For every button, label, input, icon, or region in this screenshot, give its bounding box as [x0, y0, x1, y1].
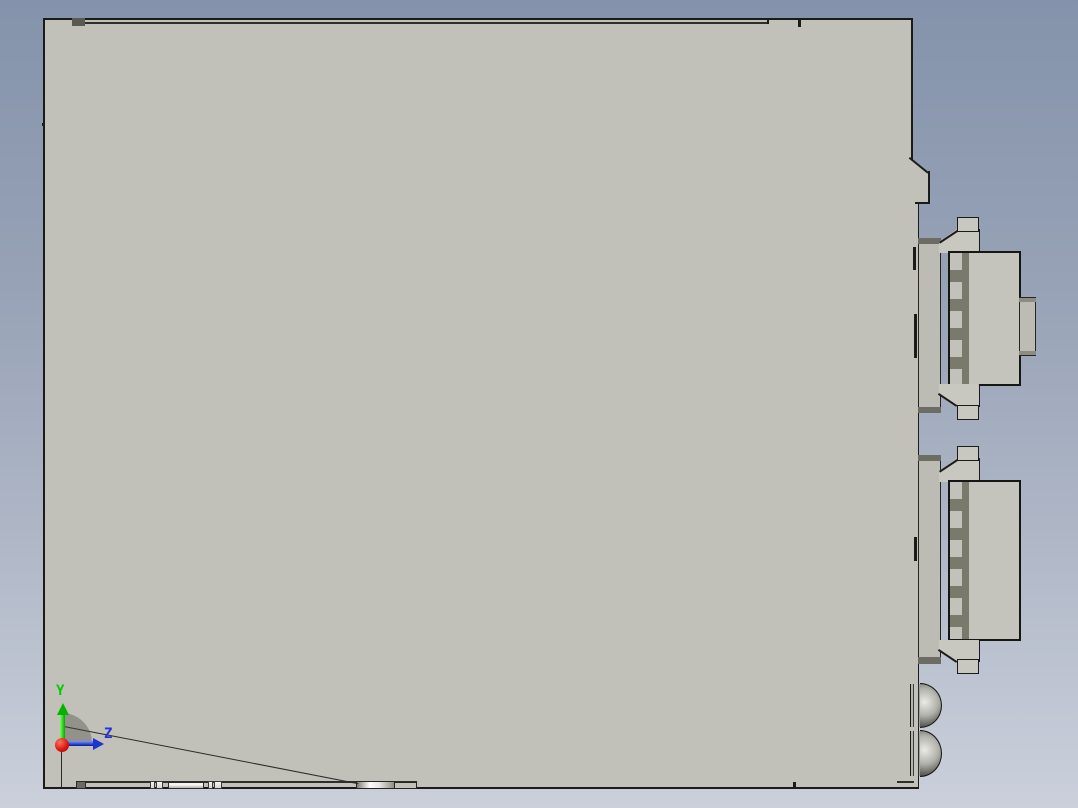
- bottom-label-slot: [168, 782, 204, 789]
- bottom-white-mark-3: [208, 781, 213, 789]
- bottom-metal-bar: [356, 781, 395, 789]
- connector-upper-flare-bottom-right-edge: [979, 384, 981, 407]
- z-axis-label: Z: [104, 727, 112, 741]
- dome-fastener-2: [920, 730, 942, 777]
- left-edge-kink: [42, 123, 45, 126]
- connector-lower-plate-band-bottom: [918, 657, 941, 664]
- connector-upper-flare-bottom: [939, 384, 981, 407]
- edge-sliver-2: [914, 314, 917, 358]
- device-body: [43, 18, 913, 789]
- bottom-seam-tick: [793, 782, 796, 789]
- connector-upper-tab-bottom: [957, 405, 979, 420]
- connector-lower-tab-bottom: [957, 659, 979, 674]
- connector-lower-dark-column: [962, 482, 969, 639]
- connector-lower-plate-band-top: [918, 455, 941, 461]
- top-mounting-tab: [72, 18, 85, 26]
- bottom-right-step: [897, 781, 914, 783]
- right-bracket-outer-edge: [928, 171, 930, 204]
- origin-point: [55, 738, 69, 752]
- connector-upper-screw-post-band-bottom: [1019, 351, 1036, 355]
- connector-upper-screw-post: [1019, 297, 1036, 356]
- connector-lower-body: [948, 480, 1021, 641]
- edge-sliver-3: [914, 537, 917, 561]
- connector-lower-flare-top: [939, 458, 981, 482]
- top-seam-tick: [798, 18, 801, 27]
- connector-upper-dark-column: [962, 253, 969, 384]
- viewport-canvas[interactable]: Y Z: [0, 0, 1078, 808]
- y-axis-arrowhead-icon: [57, 703, 69, 715]
- bottom-dark-tab: [76, 781, 86, 789]
- connector-upper-screw-post-band-top: [1019, 298, 1036, 302]
- z-axis-arrowhead-icon: [93, 738, 104, 750]
- dome-fastener-1: [920, 683, 942, 728]
- y-axis-label: Y: [56, 684, 64, 698]
- connector-upper-flare-top-right-edge: [979, 229, 981, 253]
- connector-upper-plate: [918, 238, 941, 413]
- sketch-line-vertical: [61, 751, 62, 788]
- edge-sliver-1: [913, 247, 916, 270]
- z-axis-arrow: [66, 741, 94, 746]
- bottom-white-mark-2: [156, 781, 163, 789]
- connector-lower-tab-top: [957, 446, 979, 461]
- connector-lower-flare-top-right-edge: [979, 458, 981, 482]
- right-bracket-bottom-edge: [915, 202, 929, 204]
- connector-upper-plate-band-top: [918, 238, 941, 244]
- connector-upper-plate-band-bottom: [918, 407, 941, 413]
- connector-upper-tab-top: [957, 217, 979, 232]
- bottom-white-mark-1: [150, 781, 155, 789]
- bottom-grey-box: [394, 782, 417, 789]
- connector-lower-plate: [918, 455, 941, 664]
- bottom-white-mark-4: [214, 781, 222, 789]
- top-inner-edge-line: [85, 22, 768, 24]
- connector-upper-flare-top: [939, 229, 981, 253]
- top-inner-line-step: [767, 18, 769, 24]
- connector-upper-body: [948, 251, 1021, 386]
